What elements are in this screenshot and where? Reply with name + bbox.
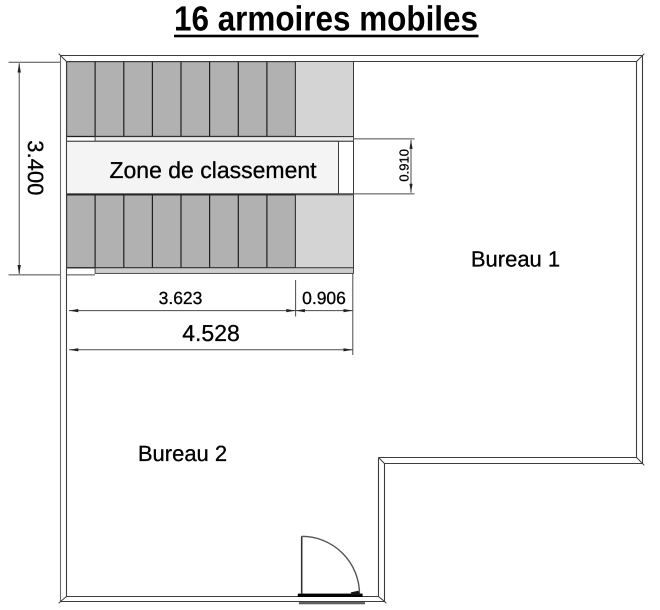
svg-text:3.400: 3.400 [23,140,48,195]
svg-text:Bureau 2: Bureau 2 [138,441,227,466]
svg-text:16 armoires mobiles: 16 armoires mobiles [174,0,478,39]
svg-text:Bureau 1: Bureau 1 [471,247,560,272]
svg-text:3.623: 3.623 [159,288,203,308]
svg-text:0.906: 0.906 [302,288,346,308]
svg-text:0.910: 0.910 [397,149,412,182]
svg-text:Zone de classement: Zone de classement [109,157,317,183]
svg-text:4.528: 4.528 [182,320,240,346]
